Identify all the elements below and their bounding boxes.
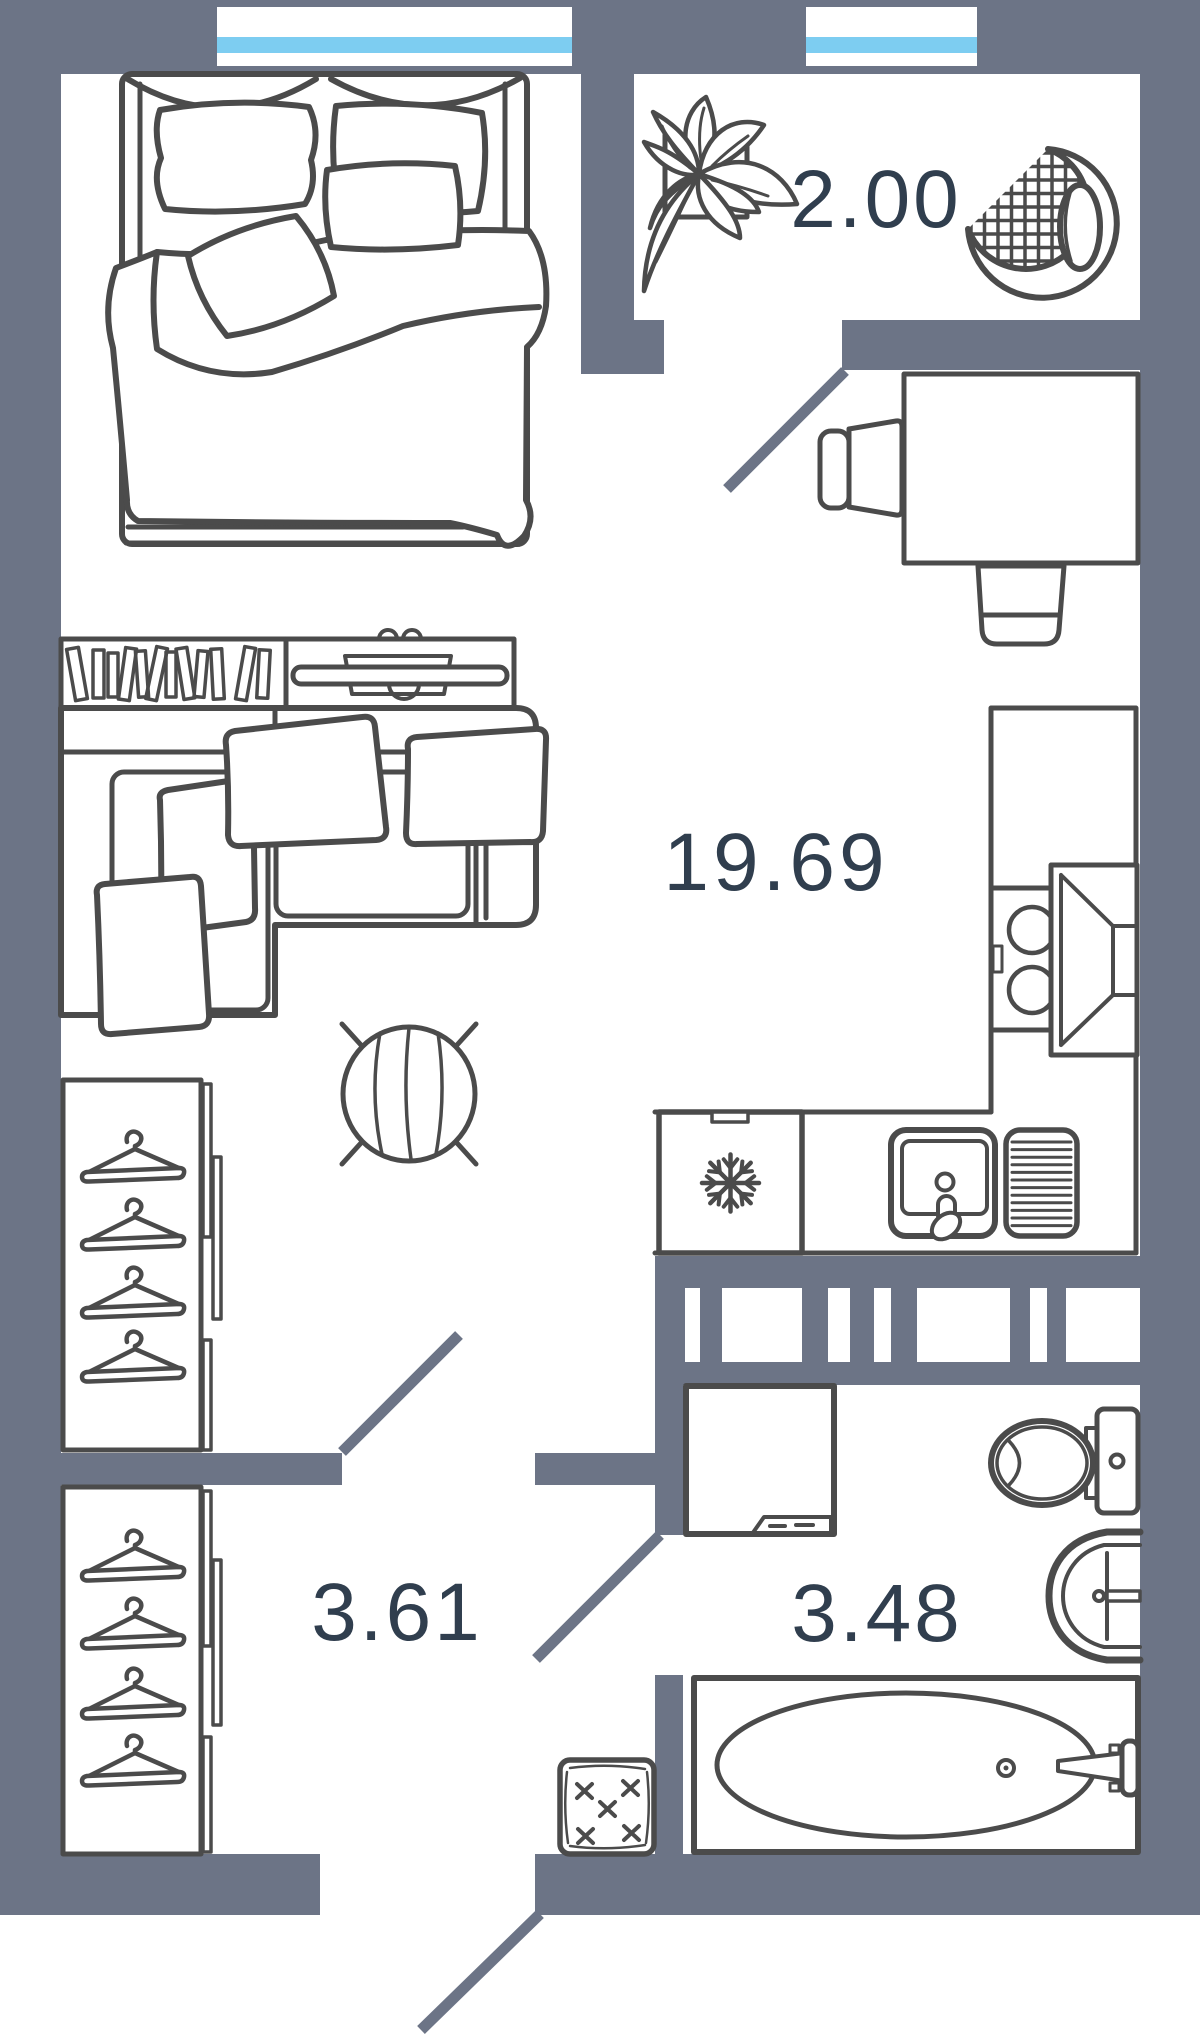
svg-text:3.48: 3.48 <box>791 1568 963 1659</box>
svg-text:3.61: 3.61 <box>311 1567 483 1658</box>
svg-text:2.00: 2.00 <box>790 154 962 245</box>
svg-text:19.69: 19.69 <box>663 817 888 908</box>
